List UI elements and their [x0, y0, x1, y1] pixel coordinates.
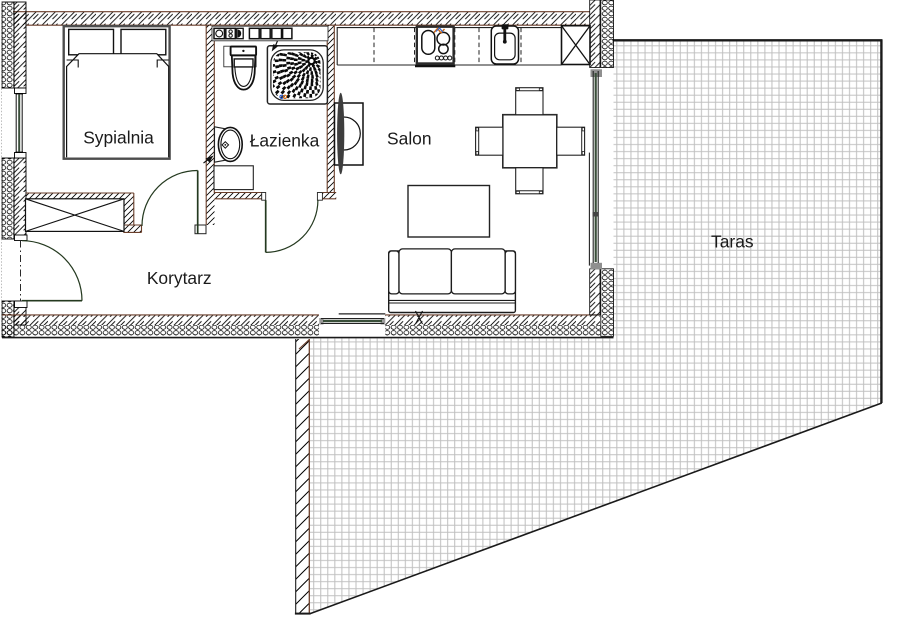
- svg-text:Łazienka: Łazienka: [250, 131, 320, 151]
- svg-text:Korytarz: Korytarz: [147, 268, 212, 288]
- svg-text:Sypialnia: Sypialnia: [83, 128, 154, 148]
- svg-text:Salon: Salon: [387, 129, 431, 149]
- svg-text:Taras: Taras: [711, 231, 754, 251]
